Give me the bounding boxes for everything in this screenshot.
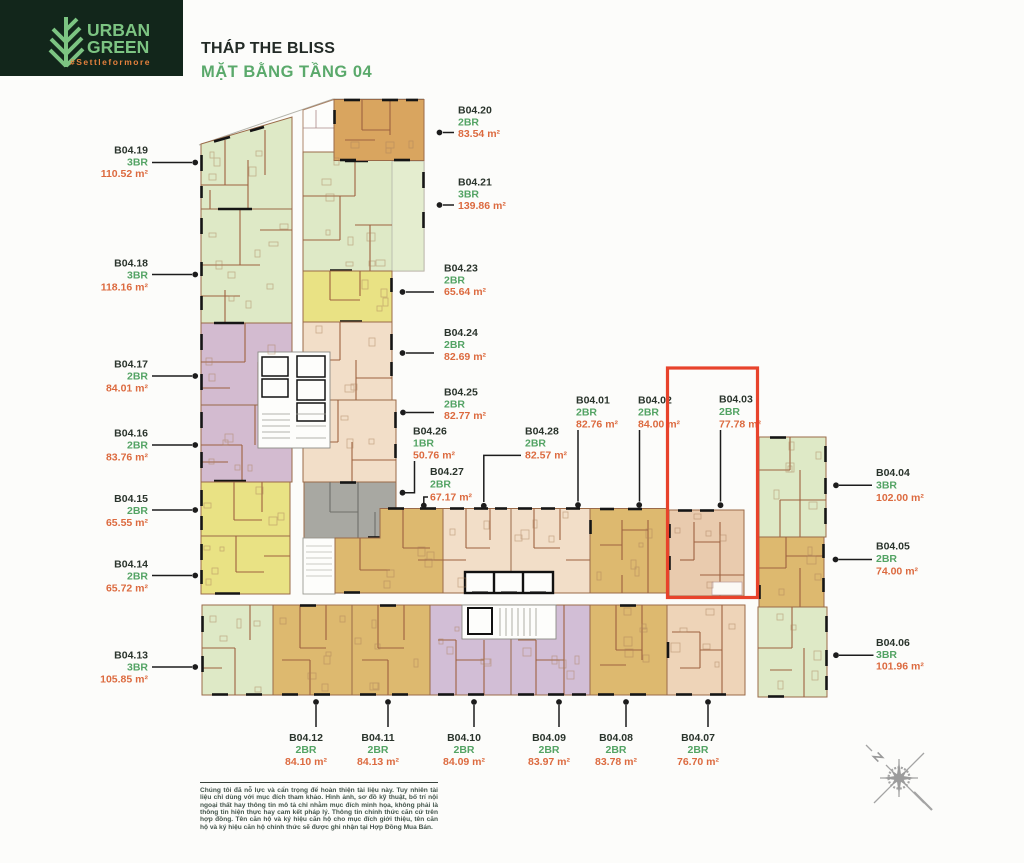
svg-text:84.09 m²: 84.09 m² (443, 756, 486, 768)
svg-text:65.55 m²: 65.55 m² (106, 517, 149, 529)
svg-text:B04.01: B04.01 (576, 395, 610, 407)
svg-text:B04.25: B04.25 (444, 387, 478, 399)
svg-text:84.00 m²: 84.00 m² (638, 419, 681, 431)
svg-text:101.96 m²: 101.96 m² (876, 661, 924, 673)
svg-text:65.64 m²: 65.64 m² (444, 286, 487, 298)
svg-text:B04.12: B04.12 (289, 732, 323, 744)
svg-text:3BR: 3BR (127, 270, 148, 282)
svg-text:67.17 m²: 67.17 m² (430, 492, 473, 504)
svg-text:B04.24: B04.24 (444, 327, 478, 339)
svg-text:2BR: 2BR (295, 744, 316, 756)
svg-text:77.78 m²: 77.78 m² (719, 419, 762, 431)
svg-text:B04.04: B04.04 (876, 467, 910, 479)
svg-text:B04.27: B04.27 (430, 466, 464, 478)
svg-text:3BR: 3BR (127, 662, 148, 674)
svg-text:B04.16: B04.16 (114, 428, 148, 440)
svg-text:B04.19: B04.19 (114, 145, 148, 157)
svg-text:B04.05: B04.05 (876, 541, 910, 553)
svg-text:2BR: 2BR (444, 399, 465, 411)
svg-text:50.76 m²: 50.76 m² (413, 450, 456, 462)
svg-text:2BR: 2BR (127, 440, 148, 452)
svg-text:74.00 m²: 74.00 m² (876, 566, 919, 578)
svg-text:2BR: 2BR (127, 571, 148, 583)
svg-text:2BR: 2BR (367, 744, 388, 756)
svg-text:B04.20: B04.20 (458, 105, 492, 117)
svg-text:B04.14: B04.14 (114, 559, 148, 571)
svg-text:2BR: 2BR (876, 553, 897, 565)
svg-text:83.54 m²: 83.54 m² (458, 128, 501, 140)
svg-text:B04.07: B04.07 (681, 732, 715, 744)
svg-text:110.52 m²: 110.52 m² (101, 168, 149, 180)
svg-text:82.57 m²: 82.57 m² (525, 450, 568, 462)
svg-text:3BR: 3BR (127, 157, 148, 169)
svg-text:3BR: 3BR (876, 480, 897, 492)
svg-text:82.77 m²: 82.77 m² (444, 410, 487, 422)
svg-text:B04.11: B04.11 (361, 732, 394, 744)
svg-text:82.76 m²: 82.76 m² (576, 419, 619, 431)
svg-text:84.10 m²: 84.10 m² (285, 756, 328, 768)
svg-text:84.13 m²: 84.13 m² (357, 756, 400, 768)
svg-text:83.78 m²: 83.78 m² (595, 756, 638, 768)
svg-text:B04.18: B04.18 (114, 258, 148, 270)
svg-text:B04.08: B04.08 (599, 732, 633, 744)
svg-text:B04.13: B04.13 (114, 650, 148, 662)
svg-text:3BR: 3BR (458, 189, 479, 201)
svg-text:76.70 m²: 76.70 m² (677, 756, 720, 768)
svg-text:102.00 m²: 102.00 m² (876, 492, 924, 504)
svg-text:65.72 m²: 65.72 m² (106, 583, 149, 595)
svg-text:83.97 m²: 83.97 m² (528, 756, 571, 768)
svg-text:B04.10: B04.10 (447, 732, 481, 744)
svg-text:2BR: 2BR (687, 744, 708, 756)
svg-text:B04.03: B04.03 (719, 394, 753, 406)
svg-text:1BR: 1BR (413, 438, 434, 450)
svg-text:2BR: 2BR (127, 371, 148, 383)
svg-text:105.85 m²: 105.85 m² (100, 674, 148, 686)
svg-text:B04.28: B04.28 (525, 426, 559, 438)
svg-text:84.01 m²: 84.01 m² (106, 383, 149, 395)
svg-text:B04.26: B04.26 (413, 426, 447, 438)
svg-text:B04.17: B04.17 (114, 359, 148, 371)
svg-text:139.86 m²: 139.86 m² (458, 200, 506, 212)
svg-text:118.16 m²: 118.16 m² (101, 282, 149, 294)
svg-text:2BR: 2BR (430, 479, 451, 491)
svg-text:2BR: 2BR (605, 744, 626, 756)
svg-text:2BR: 2BR (538, 744, 559, 756)
svg-text:2BR: 2BR (638, 407, 659, 419)
svg-text:2BR: 2BR (453, 744, 474, 756)
svg-text:2BR: 2BR (719, 406, 740, 418)
svg-text:3BR: 3BR (876, 649, 897, 661)
svg-text:83.76 m²: 83.76 m² (106, 452, 149, 464)
svg-text:2BR: 2BR (458, 117, 479, 129)
svg-text:2BR: 2BR (525, 438, 546, 450)
svg-text:B04.23: B04.23 (444, 263, 478, 275)
svg-text:B04.06: B04.06 (876, 637, 910, 649)
svg-text:2BR: 2BR (444, 339, 465, 351)
svg-text:2BR: 2BR (444, 275, 465, 287)
svg-text:B04.09: B04.09 (532, 732, 566, 744)
svg-text:2BR: 2BR (127, 505, 148, 517)
svg-text:2BR: 2BR (576, 407, 597, 419)
svg-text:82.69 m²: 82.69 m² (444, 351, 487, 363)
svg-text:B04.15: B04.15 (114, 493, 148, 505)
svg-text:B04.21: B04.21 (458, 177, 492, 189)
